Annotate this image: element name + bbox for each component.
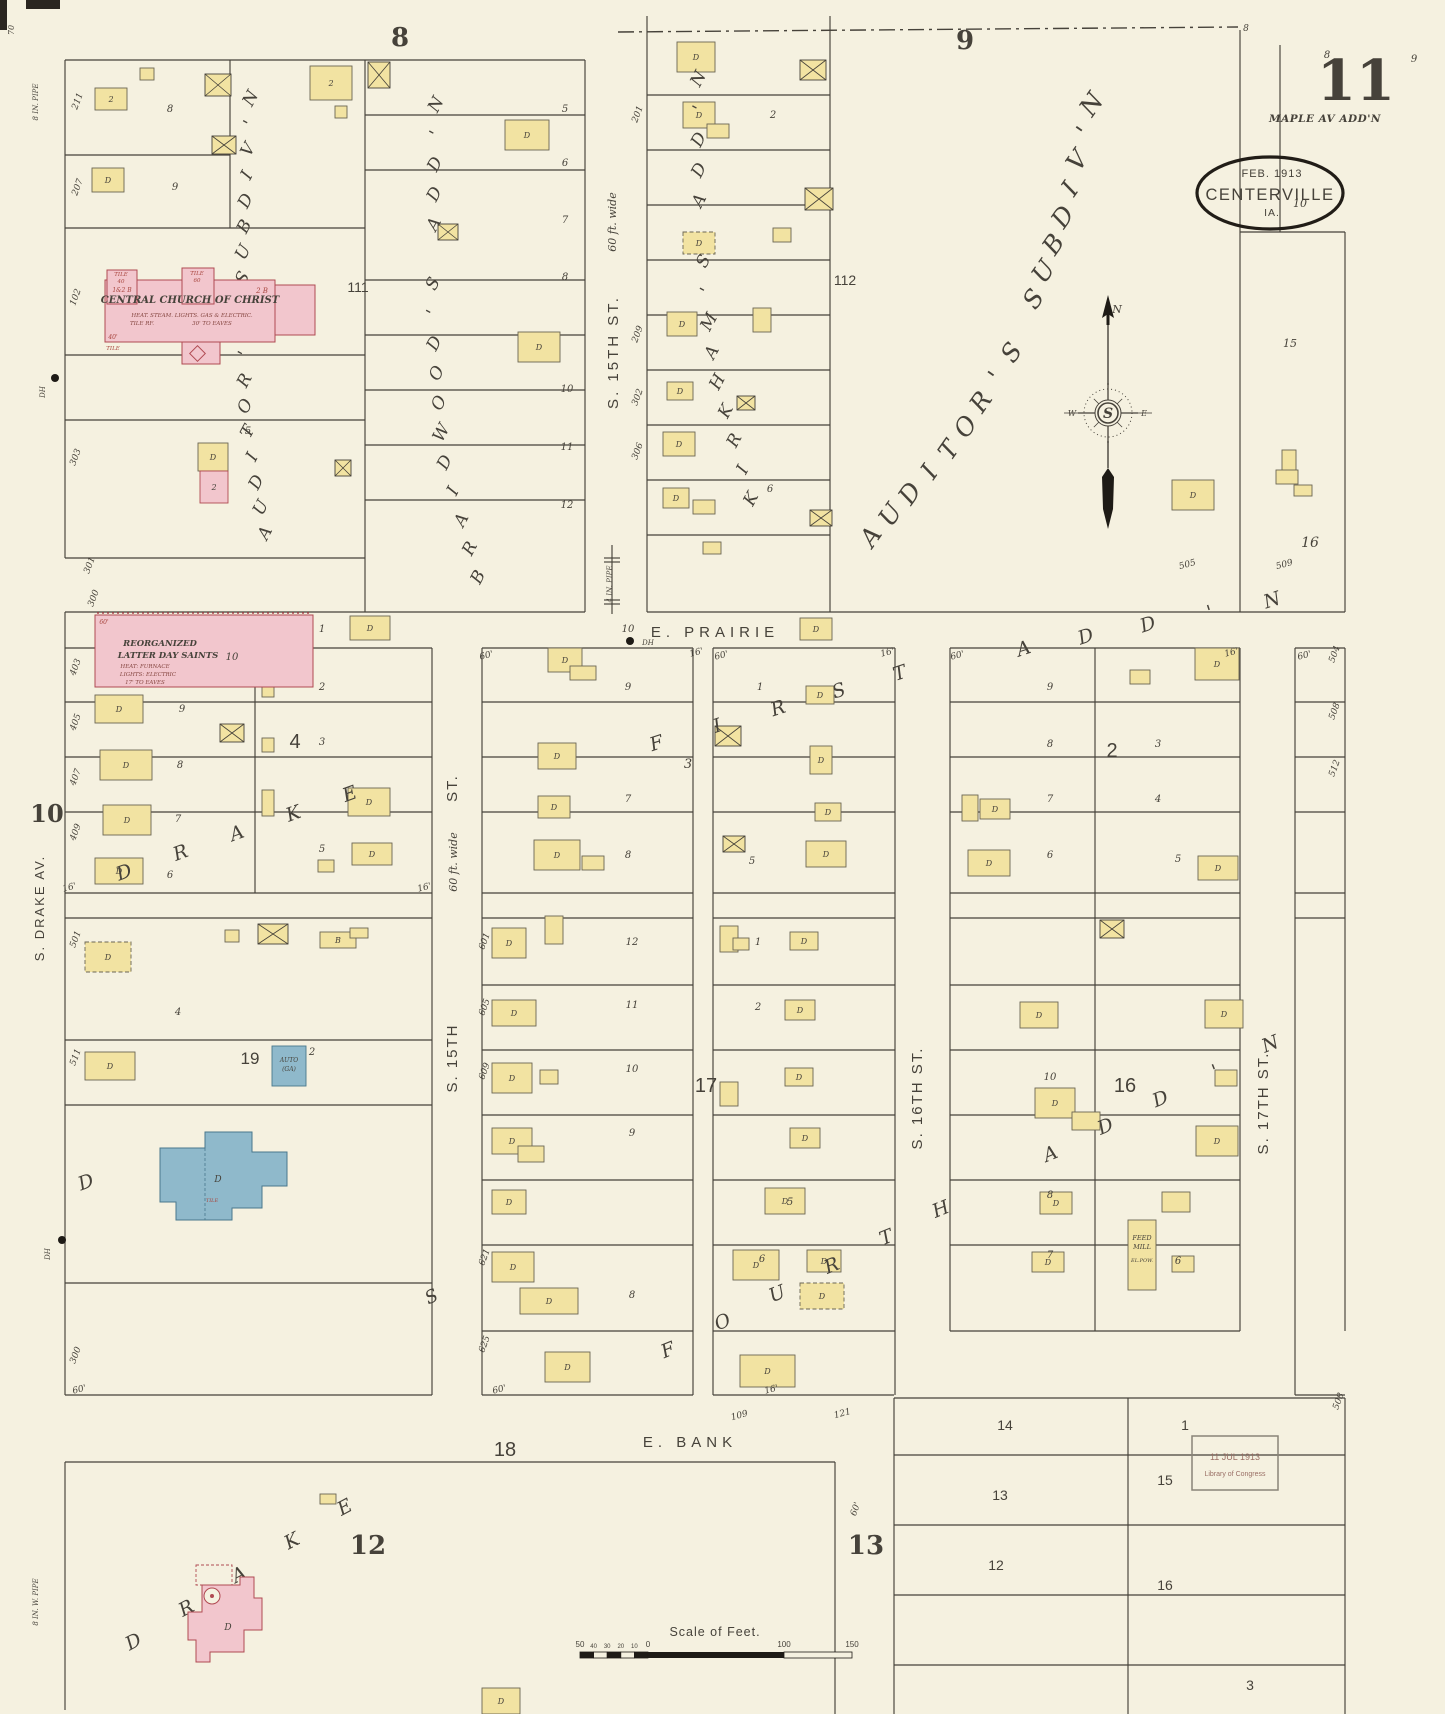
map-note: DH (39, 385, 47, 399)
building-label: D (818, 1292, 826, 1301)
lot-number: 12 (626, 937, 639, 948)
map-note: DH (641, 639, 655, 647)
barn-xbox-icon (723, 836, 745, 852)
building-label: D (801, 1134, 809, 1143)
building (350, 928, 368, 938)
map-label: 17' TO EAVES (125, 680, 165, 686)
block-number: 111 (347, 279, 368, 295)
building-label: D (505, 1198, 513, 1207)
building-label: D (675, 440, 683, 449)
building (962, 795, 978, 821)
hydrant-dot (58, 1236, 66, 1244)
lot-number: 16 (1301, 535, 1319, 551)
building-label: D (510, 1009, 518, 1018)
lot-number: 8 (1047, 739, 1053, 750)
building (262, 738, 274, 752)
map-label: 30 (604, 1644, 611, 1650)
building-label: D (104, 176, 112, 185)
building-label: D (795, 1073, 803, 1082)
map-note: 8 IN. W. PIPE (32, 1578, 40, 1625)
map-label: 150 (845, 1640, 859, 1649)
block-number: 17 (695, 1075, 717, 1097)
building-label: D (368, 850, 376, 859)
city-stamp: CENTERVILLE (1206, 186, 1335, 204)
building-label: D (508, 1074, 516, 1083)
date-stamp: FEB. 1913 (1242, 168, 1303, 180)
lot-number: 8 (625, 850, 631, 861)
map-label: LIGHTS: ELECTRIC (119, 672, 177, 678)
lot-number: 10 (561, 384, 574, 395)
lot-number: 6 (767, 484, 774, 495)
lot-number: 9 (1047, 682, 1054, 693)
building-label: D (816, 691, 824, 700)
barn-xbox-icon (368, 62, 390, 88)
lot-number: 2 (308, 1047, 315, 1058)
block-number: 4 (289, 731, 300, 753)
building-label: D (822, 850, 830, 859)
lot-number: 7 (1047, 794, 1054, 805)
barn-xbox-icon (212, 136, 236, 154)
block-number: 1 (1181, 1417, 1189, 1433)
barn-xbox-icon (737, 396, 755, 410)
building-label: 2 (327, 79, 333, 88)
lot-number: 10 (1044, 1072, 1057, 1083)
block-number: 3 (1246, 1677, 1254, 1693)
church-name: CENTRAL CHURCH OF CHRIST (101, 295, 281, 306)
building-label: D (497, 1697, 505, 1706)
building (1130, 670, 1150, 684)
building-label: D (1035, 1011, 1043, 1020)
adjacent-sheet-number: 9 (956, 26, 974, 56)
block-number: 112 (834, 272, 857, 288)
lot-number: 9 (629, 1128, 636, 1139)
lot-number: 8 (1047, 1190, 1053, 1201)
building (1294, 485, 1312, 496)
map-label: HEAT. STEAM. LIGHTS. GAS & ELECTRIC. (130, 313, 253, 319)
map-label: 100 (777, 1640, 791, 1649)
lot-number: 2 (754, 1002, 761, 1013)
building (753, 308, 771, 332)
lot-number: 9 (625, 682, 632, 693)
lot-number: 5 (787, 1197, 793, 1208)
building-label: D (1189, 491, 1197, 500)
street-label: S. 16TH ST. (909, 1047, 926, 1150)
lot-number: 8 (167, 104, 173, 115)
lds-name: LATTER DAY SAINTS (117, 651, 218, 661)
lot-number: 6 (167, 870, 174, 881)
lot-number: 5 (319, 844, 325, 855)
building-label: D (985, 859, 993, 868)
building-label: D (508, 1137, 516, 1146)
building-label: 2 (107, 95, 113, 104)
block-number: 14 (997, 1417, 1013, 1433)
building-label: D (678, 320, 686, 329)
street-label: S. 17TH ST. (1255, 1052, 1272, 1155)
lot-number: 11 (561, 442, 574, 453)
street-label: S. DRAKE AV. (32, 855, 47, 961)
lot-number: 5 (562, 104, 568, 115)
building-label: D (672, 494, 680, 503)
map-label: 0 (646, 1640, 651, 1649)
map-note: DH (44, 1247, 52, 1261)
block-number: 16 (1157, 1577, 1173, 1593)
map-note: 70 (7, 25, 16, 35)
building-label: D (695, 239, 703, 248)
adjacent-sheet-number: 8 (391, 23, 409, 53)
building (318, 860, 334, 872)
building-label: D (545, 1297, 553, 1306)
lot-number: 5 (1175, 854, 1181, 865)
building-label: D (692, 53, 700, 62)
block-number: 16 (1114, 1075, 1136, 1097)
compass-monogram: S (1103, 406, 1113, 422)
map-label: 40' (107, 334, 118, 341)
loc-name: Library of Congress (1204, 1471, 1266, 1478)
barn-xbox-icon (805, 188, 833, 210)
building-label: D (824, 808, 832, 817)
map-label: TILE (114, 272, 128, 278)
building (703, 542, 721, 554)
barn-xbox-icon (220, 724, 244, 742)
street-label: 60 ft. wide (606, 192, 619, 252)
lot-number: 1 (319, 624, 325, 635)
building (773, 228, 791, 242)
adjacent-sheet-number: 12 (350, 1531, 386, 1561)
barn-xbox-icon (1100, 920, 1124, 938)
map-label: TILE (190, 271, 204, 277)
block-number: 13 (992, 1487, 1008, 1503)
building-label: D (817, 756, 825, 765)
lds-name: REORGANIZED (122, 639, 197, 649)
building-label: D (676, 387, 684, 396)
feed-mill: FEEDMILLEL.POW. (1130, 1234, 1153, 1264)
building-label: B (334, 936, 341, 945)
scale-label: Scale of Feet. (669, 1625, 760, 1639)
match-line-label: 8 (1243, 24, 1249, 34)
building-label: D (553, 752, 561, 761)
adjacent-sheet-number: 13 (848, 1531, 884, 1561)
addition-subtitle: MAPLE AV ADD'N (1268, 113, 1381, 125)
map-label: 50 (576, 1640, 585, 1649)
building-label: D (553, 851, 561, 860)
map-label: 60' (99, 619, 109, 626)
map-label: EL.POW. (1130, 1258, 1153, 1264)
block-number: 19 (241, 1049, 260, 1068)
building-label: D (812, 625, 820, 634)
building-label: D (550, 803, 558, 812)
building (335, 106, 347, 118)
lot-number: 2 (769, 110, 776, 121)
compass-e: E (1140, 409, 1147, 418)
building-label: D (796, 1006, 804, 1015)
building (540, 1070, 558, 1084)
lot-number: 1 (757, 682, 763, 693)
building-label: D (365, 798, 373, 807)
lot-number: 12 (561, 500, 574, 511)
building (582, 856, 604, 870)
map-label: TILE (206, 1198, 219, 1204)
map-label: (GA) (282, 1066, 296, 1073)
lot-number: 7 (175, 814, 182, 825)
map-label: 60 (194, 278, 201, 284)
building (1276, 470, 1298, 484)
adjacent-sheet-number: 8 (1324, 50, 1330, 61)
map-label: HEAT: FURNACE (119, 664, 169, 670)
street-label: E. PRAIRIE (651, 624, 779, 641)
building-label: D (509, 1263, 517, 1272)
map-label: 2 B (255, 287, 268, 295)
map-label: TILE RF. (130, 321, 154, 327)
lot-number: 10 (226, 652, 239, 663)
building-label: D (106, 1062, 114, 1071)
lot-number: 10 (626, 1064, 639, 1075)
building (262, 790, 274, 816)
barn-xbox-icon (800, 60, 826, 80)
lot-number: 7 (1047, 1250, 1054, 1261)
building-label: D (209, 453, 217, 462)
lot-number: 9 (179, 704, 186, 715)
building-label: D (1051, 1099, 1059, 1108)
lot-number: 6 (1047, 850, 1054, 861)
map-canvas: 822DD2DDDDDDDDDDDDDDDDDDDDDDDDDDDDDDDDBD… (0, 0, 1445, 1714)
lot-number: 3 (319, 737, 325, 748)
map-label: D (223, 1623, 231, 1633)
map-label: 20 (617, 1644, 624, 1650)
lot-number: 8 (177, 760, 183, 771)
map-label: D (213, 1175, 221, 1185)
building (707, 124, 729, 138)
building (1128, 1220, 1156, 1290)
loc-date: 11 JUL 1913 (1210, 1452, 1260, 1462)
lot-number: 6 (759, 1254, 766, 1265)
block-number: 15 (1157, 1472, 1173, 1488)
building (733, 938, 749, 950)
building-label: D (563, 1363, 571, 1372)
map-label: 1&2 B (112, 287, 132, 294)
barn-xbox-icon (335, 460, 351, 476)
building-label: D (122, 761, 130, 770)
lot-number: 4 (1154, 794, 1161, 805)
building-label: D (104, 953, 112, 962)
building-label: D (366, 624, 374, 633)
lot-number: 15 (1283, 337, 1297, 350)
lot-number: 5 (749, 856, 755, 867)
building-label: D (123, 816, 131, 825)
lot-number: 7 (562, 215, 569, 226)
lot-number: 2 (318, 682, 325, 693)
building (225, 930, 239, 942)
lot-number: 10 (622, 624, 635, 635)
building-label: D (1213, 660, 1221, 669)
map-label: 40 (590, 1644, 597, 1650)
adjacent-sheet-number: 10 (30, 799, 63, 828)
building-label: D (1213, 1137, 1221, 1146)
map-note: 8 IN. PIPE (32, 84, 40, 121)
map-label: TILE (106, 346, 120, 352)
street-label: S. 15TH ST. (605, 295, 622, 409)
lot-number: 3 (1155, 739, 1161, 750)
state-stamp: IA. (1264, 207, 1280, 219)
map-label: 10 (631, 1644, 638, 1650)
map-label: MILL (1132, 1243, 1151, 1251)
building-label: D (505, 939, 513, 948)
sanborn-map-sheet: 822DD2DDDDDDDDDDDDDDDDDDDDDDDDDDDDDDDDBD… (0, 0, 1445, 1714)
compass-w: W (1068, 409, 1077, 418)
lot-number: 5 (245, 426, 251, 437)
paper-edge-mark (0, 0, 7, 30)
building (693, 500, 715, 514)
lot-number: 11 (626, 1000, 639, 1011)
hydrant-dot (626, 637, 634, 645)
map-label: 40 (117, 279, 125, 285)
lot-number: 7 (625, 794, 632, 805)
block-number: 18 (494, 1439, 516, 1461)
building-label: D (1220, 1010, 1228, 1019)
building (570, 666, 596, 680)
building-label: D (561, 656, 569, 665)
building-label: D (535, 343, 543, 352)
lot-number: 8 (562, 272, 568, 283)
block-number: 2 (1106, 740, 1117, 762)
building-label: D (763, 1367, 771, 1376)
building (720, 1082, 738, 1106)
lot-number: 6 (562, 158, 569, 169)
lot-number: 8 (629, 1290, 635, 1301)
reorganized-latter-day-saints-church: 60'REORGANIZEDLATTER DAY SAINTSHEAT: FUR… (95, 613, 313, 687)
barn-xbox-icon (205, 74, 231, 96)
lot-number: 4 (174, 1007, 181, 1018)
map-label: AUTO (279, 1057, 298, 1064)
building-label: D (800, 937, 808, 946)
barn-xbox-icon (258, 924, 288, 944)
map-label: FEED (1131, 1234, 1152, 1242)
building (545, 916, 563, 944)
adjacent-sheet-number: 9 (1411, 54, 1418, 65)
building-label: D (523, 131, 531, 140)
map-label: 30' TO EAVES (192, 321, 232, 327)
street-label: ST. (444, 774, 461, 802)
paper-edge-mark (26, 0, 60, 9)
building-label: D (115, 705, 123, 714)
lot-number: 6 (1175, 1256, 1182, 1267)
map-note: 4 IN. PIPE (606, 566, 614, 604)
building-label: D (991, 805, 999, 814)
building (1162, 1192, 1190, 1212)
street-label: S. 15TH (444, 1023, 461, 1092)
building-label: D (1214, 864, 1222, 873)
barn-xbox-icon (810, 510, 832, 526)
building (140, 68, 154, 80)
compass-n: N (1111, 303, 1122, 316)
street-label: 60 ft. wide (447, 832, 460, 892)
hydrant-dot (51, 374, 59, 382)
building-label: 2 (210, 483, 216, 492)
lot-number: 1 (755, 937, 761, 948)
lot-number: 9 (172, 182, 179, 193)
street-label: E. BANK (643, 1434, 737, 1451)
block-number: 12 (988, 1557, 1004, 1573)
building (518, 1146, 544, 1162)
lot-number: 3 (684, 757, 692, 772)
